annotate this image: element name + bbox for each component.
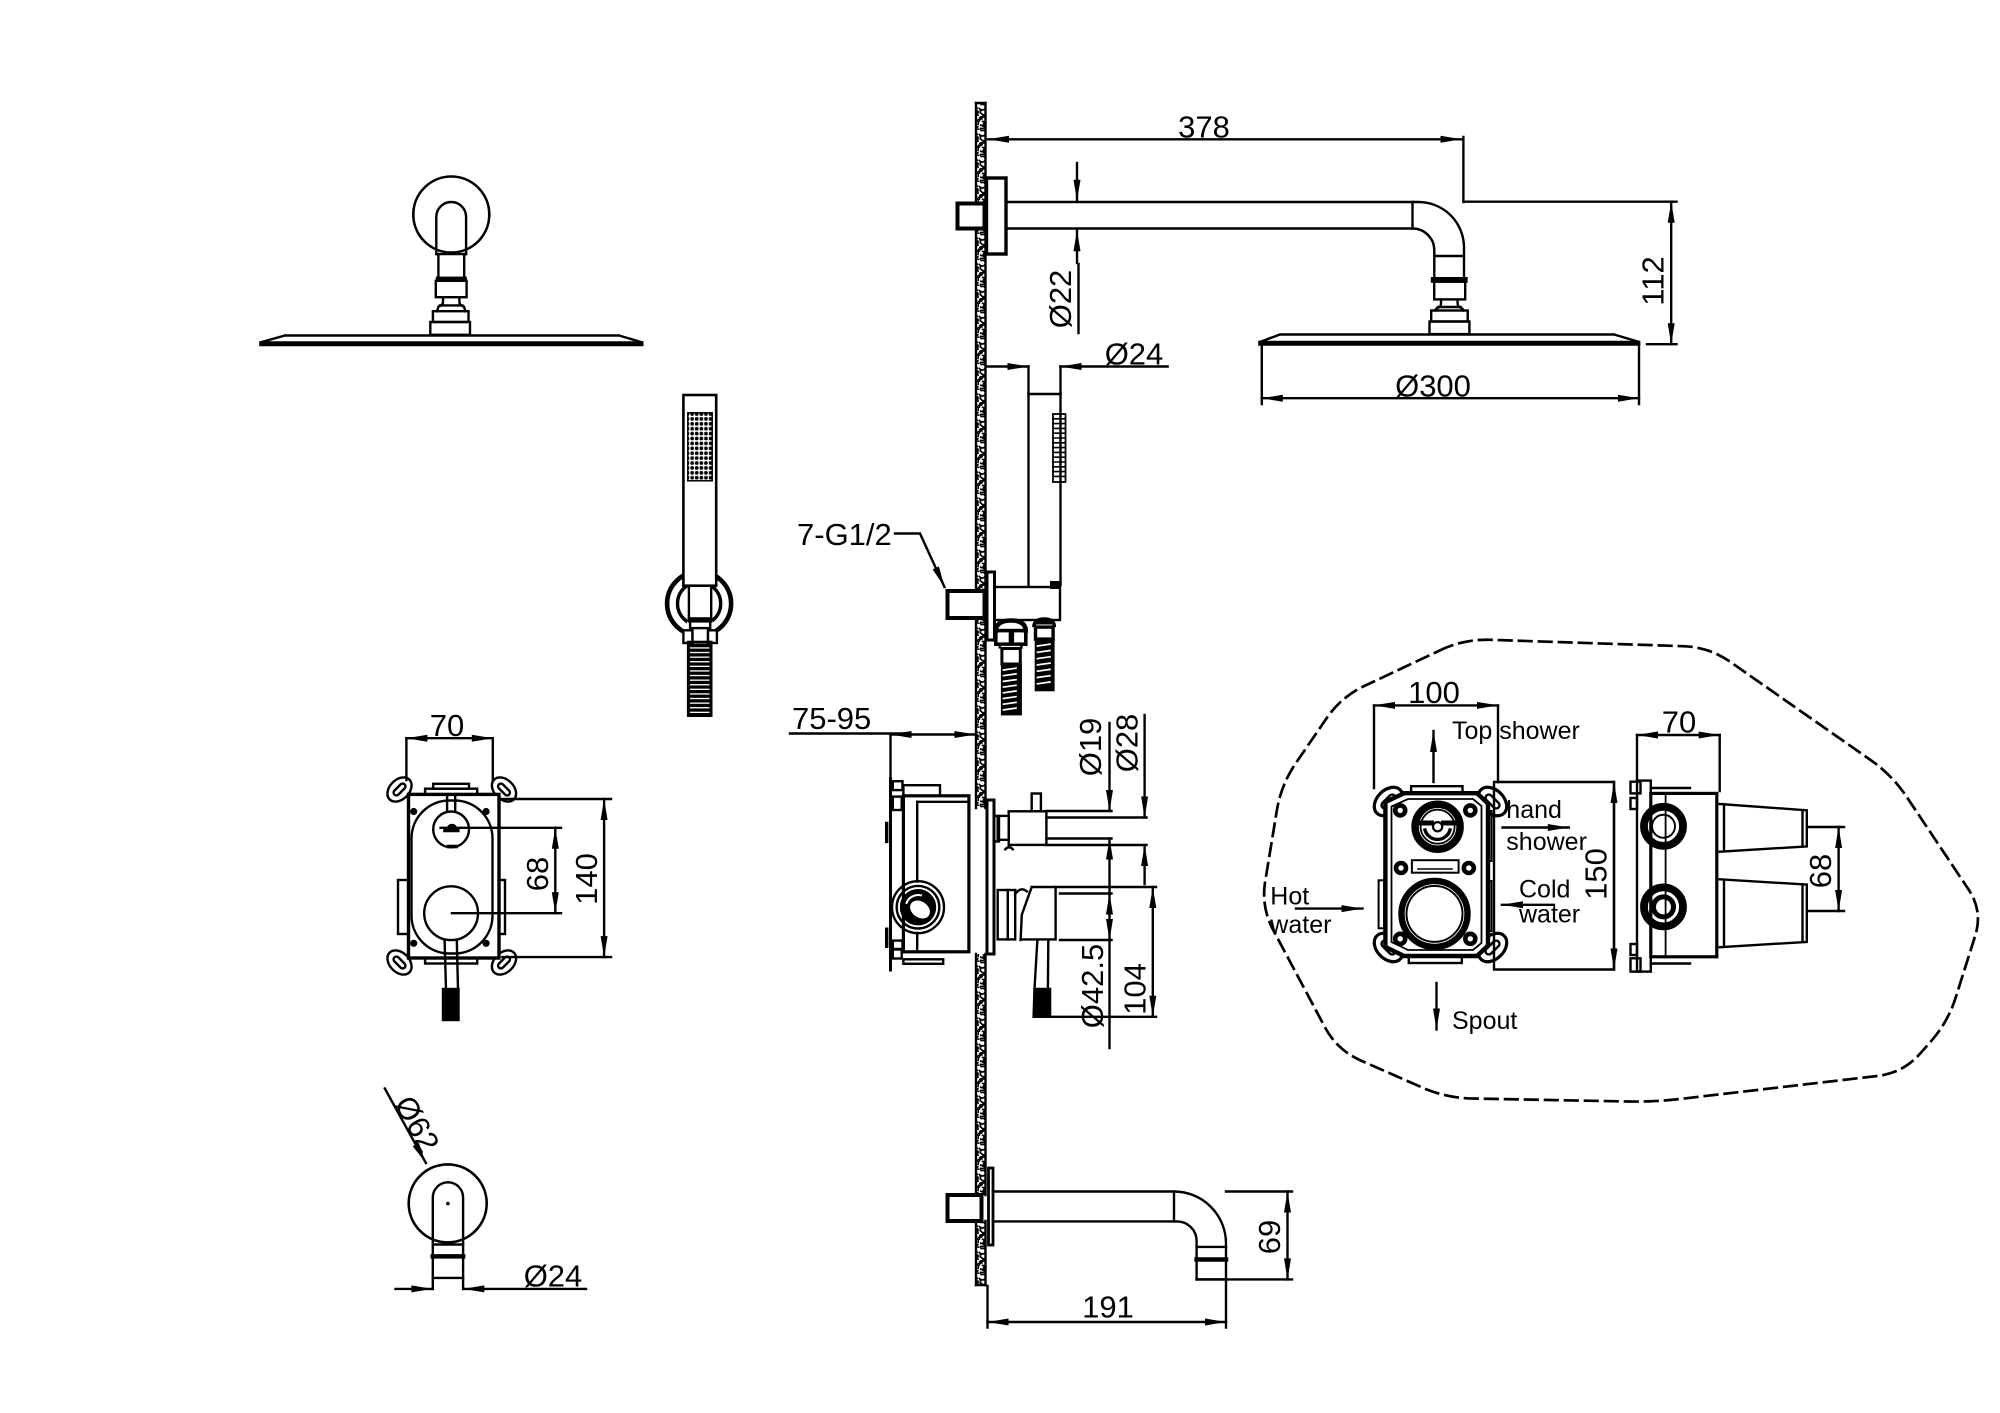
svg-text:75-95: 75-95 — [792, 701, 871, 736]
svg-text:Spout: Spout — [1452, 1007, 1517, 1035]
svg-text:104: 104 — [1118, 963, 1153, 1015]
svg-text:69: 69 — [1252, 1220, 1287, 1254]
svg-text:Hot: Hot — [1270, 883, 1309, 911]
svg-text:70: 70 — [1662, 705, 1696, 740]
svg-text:Ø24: Ø24 — [1105, 337, 1164, 372]
svg-text:water: water — [1518, 901, 1580, 929]
svg-text:hand: hand — [1506, 796, 1562, 824]
svg-text:Ø300: Ø300 — [1395, 369, 1471, 404]
svg-text:Top shower: Top shower — [1452, 717, 1580, 745]
svg-text:shower: shower — [1506, 828, 1587, 856]
svg-text:water: water — [1269, 911, 1331, 939]
svg-text:Ø22: Ø22 — [1043, 270, 1078, 329]
svg-text:150: 150 — [1579, 848, 1614, 900]
svg-text:100: 100 — [1408, 675, 1460, 710]
svg-text:112: 112 — [1636, 256, 1671, 305]
svg-text:70: 70 — [430, 708, 464, 743]
svg-text:7-G1/2: 7-G1/2 — [797, 517, 892, 552]
svg-text:Ø28: Ø28 — [1110, 714, 1145, 773]
svg-text:378: 378 — [1178, 110, 1230, 145]
svg-text:Cold: Cold — [1519, 875, 1570, 903]
svg-text:191: 191 — [1082, 1290, 1134, 1325]
svg-text:68: 68 — [1803, 854, 1838, 888]
svg-text:68: 68 — [520, 857, 555, 891]
svg-text:Ø42.5: Ø42.5 — [1075, 944, 1110, 1028]
svg-text:Ø19: Ø19 — [1073, 718, 1108, 777]
svg-text:140: 140 — [569, 853, 604, 905]
svg-text:Ø24: Ø24 — [524, 1259, 583, 1294]
